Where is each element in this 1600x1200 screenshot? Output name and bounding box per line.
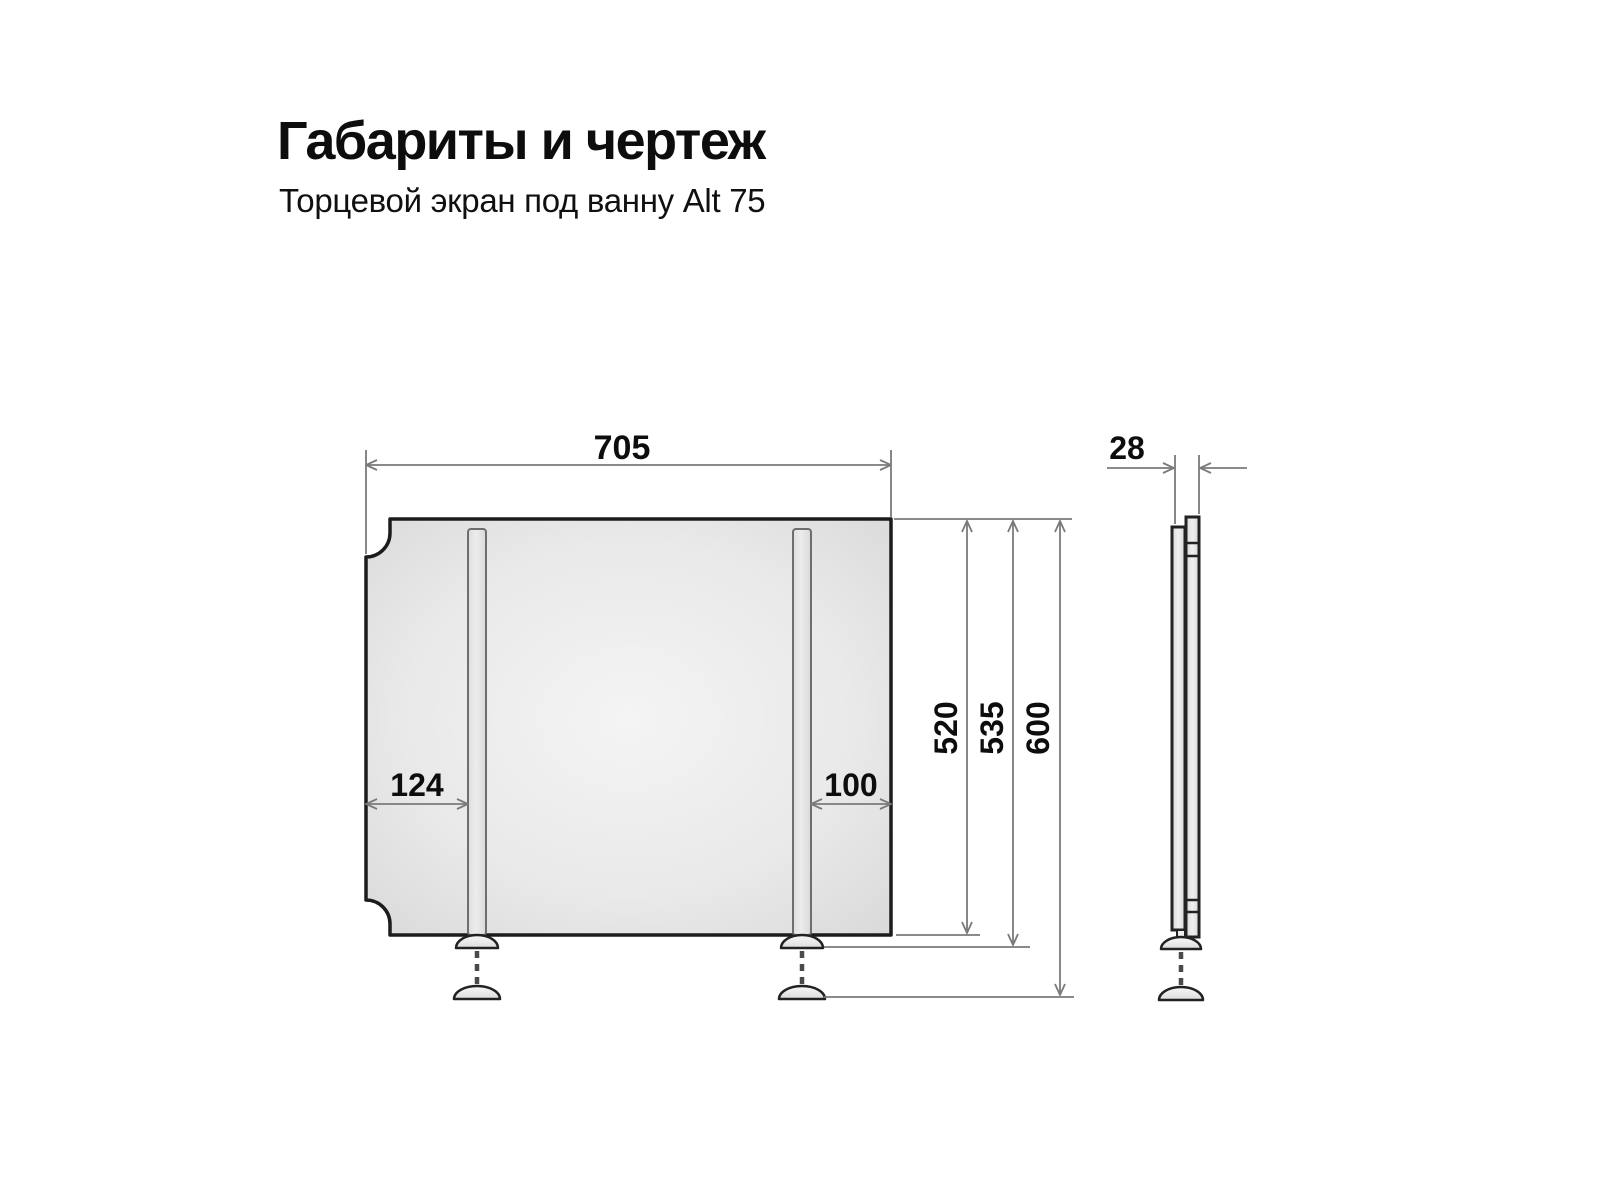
left-foot-lower-dome — [454, 986, 500, 999]
technical-drawing: 705 124 100 520 535 600 28 — [0, 0, 1600, 1200]
side-panel-strip — [1172, 527, 1185, 930]
right-foot — [779, 935, 825, 999]
label-height-to-foot: 535 — [974, 701, 1010, 754]
side-rail-strip — [1186, 517, 1199, 937]
right-foot-upper-dome — [781, 935, 823, 948]
label-thickness: 28 — [1109, 430, 1145, 466]
side-foot-lower-dome — [1159, 987, 1203, 1000]
front-view — [366, 519, 891, 999]
right-rail — [793, 529, 811, 935]
label-max-height: 600 — [1020, 701, 1056, 754]
right-foot-lower-dome — [779, 986, 825, 999]
side-foot — [1159, 930, 1203, 1000]
left-rail — [468, 529, 486, 935]
panel-outline — [366, 519, 891, 935]
left-foot — [454, 935, 500, 999]
left-foot-upper-dome — [456, 935, 498, 948]
label-right-offset: 100 — [824, 767, 877, 803]
label-width: 705 — [594, 429, 651, 467]
label-panel-height: 520 — [928, 701, 964, 754]
side-foot-upper-dome — [1161, 937, 1201, 949]
side-view — [1159, 517, 1203, 1000]
label-left-offset: 124 — [390, 767, 444, 803]
